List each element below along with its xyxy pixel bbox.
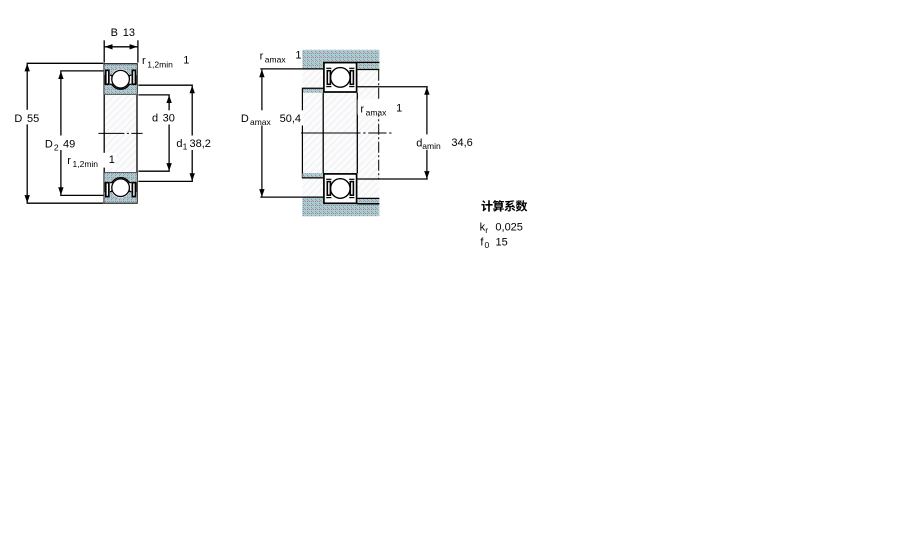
svg-text:55: 55 (27, 113, 39, 125)
svg-text:1: 1 (109, 154, 115, 166)
svg-text:1,2min: 1,2min (73, 159, 99, 169)
svg-text:D: D (241, 113, 249, 125)
svg-text:D: D (14, 113, 22, 125)
svg-text:0,025: 0,025 (495, 221, 523, 233)
svg-text:1: 1 (396, 102, 402, 114)
svg-text:amax: amax (366, 108, 388, 118)
svg-text:r: r (142, 55, 146, 67)
svg-text:d: d (176, 138, 182, 150)
svg-text:2: 2 (54, 142, 59, 152)
svg-text:r: r (485, 225, 488, 235)
svg-text:15: 15 (496, 236, 508, 248)
svg-text:34,6: 34,6 (451, 137, 472, 149)
svg-text:amax: amax (250, 117, 272, 127)
svg-text:38,2: 38,2 (190, 138, 211, 150)
svg-text:r: r (260, 50, 264, 62)
svg-text:1: 1 (183, 54, 189, 66)
svg-text:d: d (152, 113, 158, 125)
svg-text:1: 1 (295, 49, 301, 61)
svg-text:amin: amin (422, 141, 441, 151)
svg-text:50,4: 50,4 (280, 113, 301, 125)
svg-text:0: 0 (485, 240, 490, 250)
svg-text:49: 49 (63, 139, 75, 151)
svg-text:amax: amax (265, 55, 287, 65)
svg-text:r: r (360, 103, 364, 115)
svg-text:30: 30 (163, 113, 175, 125)
svg-text:B: B (111, 27, 118, 39)
svg-text:13: 13 (123, 27, 135, 39)
svg-text:1,2min: 1,2min (147, 59, 173, 69)
svg-text:r: r (67, 155, 71, 167)
svg-text:D: D (45, 139, 53, 151)
svg-text:1: 1 (183, 142, 188, 152)
